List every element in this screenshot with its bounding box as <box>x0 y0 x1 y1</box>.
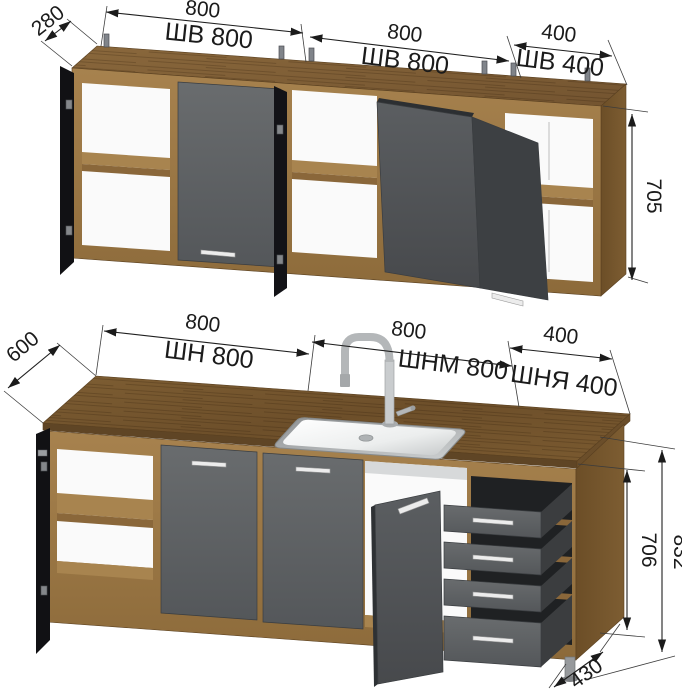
wall-cabinet-1 <box>60 66 280 275</box>
dim-base-depth: 600 <box>2 327 44 367</box>
wall-cabinet-1-open-door <box>60 66 74 275</box>
label-wall-cab3: ШВ 400 <box>514 44 605 83</box>
dim-wall-depth: 280 <box>27 1 69 41</box>
faucet-riser <box>385 360 394 424</box>
faucet-lever-knob <box>411 406 416 411</box>
base-cabinet-1-hinge <box>41 586 47 595</box>
base-cabinet-1-hinge <box>41 462 47 471</box>
extension-line <box>308 335 315 391</box>
mounting-bracket <box>104 34 109 47</box>
mounting-bracket <box>279 46 284 59</box>
drawing-canvas: 280 800 ШВ 800 800 ШВ 800 400 ШВ 400 705… <box>0 0 682 700</box>
open-door-face <box>377 102 480 288</box>
dim-base-cab1-width: 800 <box>184 310 222 337</box>
mounting-bracket <box>482 61 487 74</box>
base-cabinet-2-open-door <box>371 491 443 687</box>
wall-cabinet-1-hinge <box>66 100 72 109</box>
dim-base-body-height: 706 <box>637 532 660 567</box>
dim-wall-height: 705 <box>642 178 665 213</box>
extension-line <box>608 40 627 85</box>
label-base-cab2: ШНМ 800 <box>396 344 509 385</box>
label-wall-cab1: ШВ 800 <box>163 18 254 55</box>
base-cabinet-1-hinge-plate <box>38 450 47 456</box>
wall-cabinet-2-hinge <box>277 125 283 134</box>
sink-drain <box>359 435 373 441</box>
dim-base-total-height: 832 <box>669 534 682 569</box>
extension-line <box>41 41 72 66</box>
label-base-cab1: ШН 800 <box>163 336 255 375</box>
open-door-face <box>375 491 443 684</box>
dim-wall-cab2-width: 800 <box>386 20 424 47</box>
wall-row-right-side <box>601 84 626 296</box>
open-door-angled-face <box>472 117 548 300</box>
kitchen-dimension-drawing: 280 800 ШВ 800 800 ШВ 800 400 ШВ 400 705… <box>0 0 682 700</box>
base-cabinet-2-door-left <box>263 453 363 629</box>
extension-line <box>600 633 645 637</box>
label-base-cab3: ШНЯ 400 <box>509 360 620 403</box>
mounting-bracket <box>309 48 314 61</box>
faucet-spout <box>340 374 350 387</box>
extension-line <box>301 24 306 62</box>
wall-cabinet-1-hinge <box>66 226 72 235</box>
dim-base-cab2-width: 800 <box>390 317 428 344</box>
dim-line-base-cab3 <box>510 348 612 359</box>
extension-line <box>628 277 648 283</box>
dim-wall-cab3-width: 400 <box>540 20 578 47</box>
extension-line <box>67 19 97 44</box>
faucet-neck <box>345 337 390 376</box>
extension-line <box>4 391 43 423</box>
wall-cabinet-2-hinge <box>277 255 283 264</box>
wall-cabinet-2-open-door-left <box>274 86 287 297</box>
base-cabinet-1-door <box>161 445 257 620</box>
extension-line <box>96 325 103 375</box>
extension-line <box>57 343 96 376</box>
dim-base-cab3-width: 400 <box>542 322 580 349</box>
wall-cabinet-1-door <box>178 82 280 267</box>
